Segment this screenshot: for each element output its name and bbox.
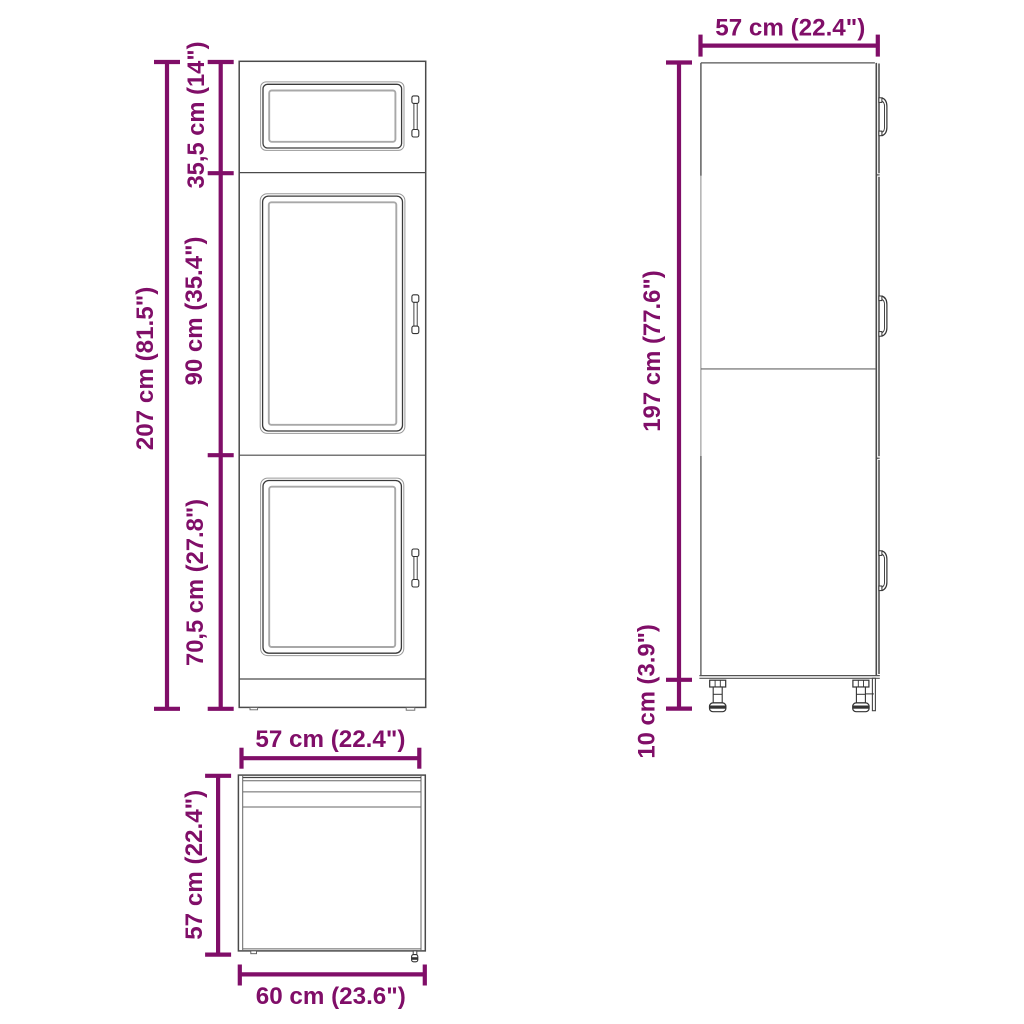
svg-text:35,5 cm (14"): 35,5 cm (14")	[183, 42, 210, 189]
svg-text:197 cm (77.6"): 197 cm (77.6")	[639, 270, 666, 432]
svg-text:57 cm (22.4"): 57 cm (22.4")	[181, 790, 208, 940]
svg-text:60 cm (23.6"): 60 cm (23.6")	[256, 983, 406, 1010]
svg-text:70,5 cm (27.8"): 70,5 cm (27.8")	[182, 499, 209, 666]
svg-text:90 cm (35.4"): 90 cm (35.4")	[181, 237, 208, 386]
svg-text:10 cm (3.9"): 10 cm (3.9")	[634, 624, 661, 759]
svg-text:207 cm (81.5"): 207 cm (81.5")	[132, 287, 159, 451]
svg-text:57 cm (22.4"): 57 cm (22.4")	[715, 15, 865, 42]
svg-text:57 cm (22.4"): 57 cm (22.4")	[255, 726, 405, 753]
